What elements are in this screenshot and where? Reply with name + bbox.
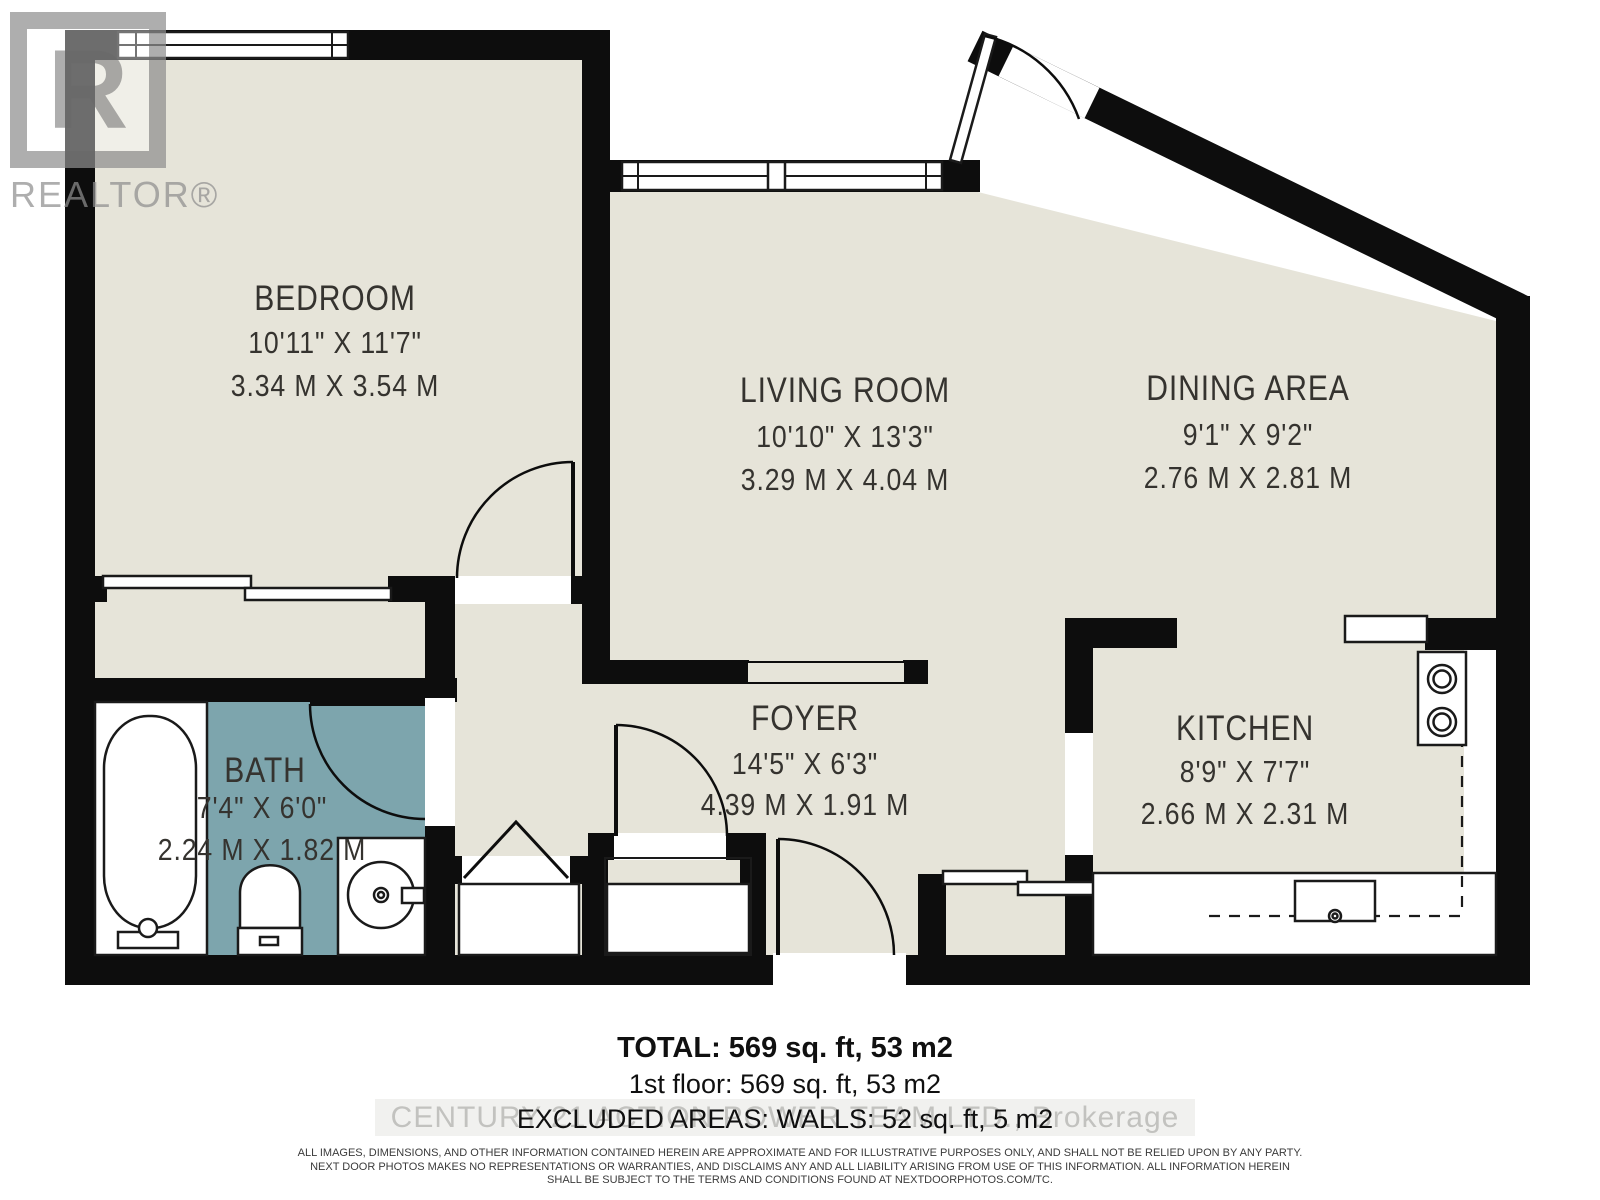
first-floor-area-line: 1st floor: 569 sq. ft, 53 m2 bbox=[0, 1069, 1570, 1100]
realtor-r-letter: R bbox=[48, 34, 129, 146]
bedroom-dim-imperial: 10'11" X 11'7" bbox=[248, 326, 422, 360]
bath-label: BATH bbox=[224, 750, 305, 790]
total-area-line: TOTAL: 569 sq. ft, 53 m2 bbox=[0, 1032, 1570, 1065]
foyer-dim-imperial: 14'5" X 6'3" bbox=[732, 747, 878, 781]
bath-dim-metric: 2.24 M X 1.82 M bbox=[158, 833, 366, 867]
foyer-dim-metric: 4.39 M X 1.91 M bbox=[701, 788, 909, 822]
kitchen-sink-icon bbox=[1295, 881, 1375, 922]
floor-plan-drawing: BEDROOM 10'11" X 11'7" 3.34 M X 3.54 M L… bbox=[0, 0, 1600, 1200]
area-summary: TOTAL: 569 sq. ft, 53 m2 1st floor: 569 … bbox=[0, 1032, 1570, 1135]
living-room-label: LIVING ROOM bbox=[740, 370, 950, 410]
dining-area-dim-imperial: 9'1" X 9'2" bbox=[1183, 418, 1313, 452]
living-room-window bbox=[622, 162, 942, 190]
realtor-logo: R REALTOR® bbox=[10, 12, 219, 216]
foyer-label: FOYER bbox=[751, 698, 859, 738]
disclaimer-line-1: ALL IMAGES, DIMENSIONS, AND OTHER INFORM… bbox=[0, 1147, 1600, 1161]
floor-plan-page: BEDROOM 10'11" X 11'7" 3.34 M X 3.54 M L… bbox=[0, 0, 1600, 1200]
dining-area-dim-metric: 2.76 M X 2.81 M bbox=[1144, 461, 1352, 495]
excluded-area-line: EXCLUDED AREAS: WALLS: 52 sq. ft, 5 m2 bbox=[0, 1104, 1570, 1135]
kitchen-dim-imperial: 8'9" X 7'7" bbox=[1180, 755, 1310, 789]
realtor-wordmark: REALTOR® bbox=[10, 174, 219, 216]
kitchen-label: KITCHEN bbox=[1176, 708, 1314, 748]
bathtub-icon bbox=[95, 702, 207, 955]
living-room-dim-metric: 3.29 M X 4.04 M bbox=[741, 463, 949, 497]
living-room-dim-imperial: 10'10" X 13'3" bbox=[756, 420, 934, 454]
bedroom-dim-metric: 3.34 M X 3.54 M bbox=[231, 369, 439, 403]
kitchen-dim-metric: 2.66 M X 2.31 M bbox=[1141, 797, 1349, 831]
disclaimer-line-3: SHALL BE SUBJECT TO THE TERMS AND CONDIT… bbox=[0, 1174, 1600, 1188]
bath-dim-imperial: 7'4" X 6'0" bbox=[197, 791, 327, 825]
disclaimer-line-2: NEXT DOOR PHOTOS MAKES NO REPRESENTATION… bbox=[0, 1161, 1600, 1175]
toilet-icon bbox=[238, 865, 302, 955]
bedroom-label: BEDROOM bbox=[254, 278, 415, 318]
stove-icon bbox=[1418, 652, 1466, 745]
dining-area-label: DINING AREA bbox=[1146, 368, 1349, 408]
disclaimer: ALL IMAGES, DIMENSIONS, AND OTHER INFORM… bbox=[0, 1147, 1600, 1188]
realtor-logo-icon: R bbox=[10, 12, 166, 168]
